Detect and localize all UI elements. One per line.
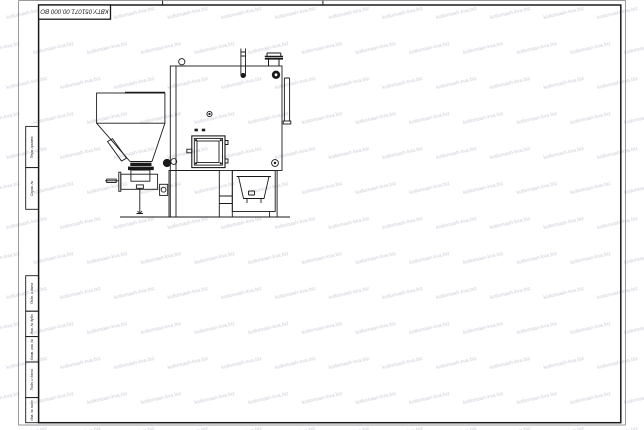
svg-text:Взам. инв. №: Взам. инв. № [30,338,34,359]
svg-text:Инв. № дубл.: Инв. № дубл. [30,313,34,334]
svg-text:КВТУ.051071.00.000 ВО: КВТУ.051071.00.000 ВО [40,8,108,15]
svg-text:Инв. № подл.: Инв. № подл. [30,400,34,421]
svg-text:Подп. и дата: Подп. и дата [30,283,34,304]
svg-text:Подп. и дата: Подп. и дата [30,369,34,390]
svg-text:Перв. примен.: Перв. примен. [30,136,34,159]
svg-text:Справ. №: Справ. № [30,180,34,196]
